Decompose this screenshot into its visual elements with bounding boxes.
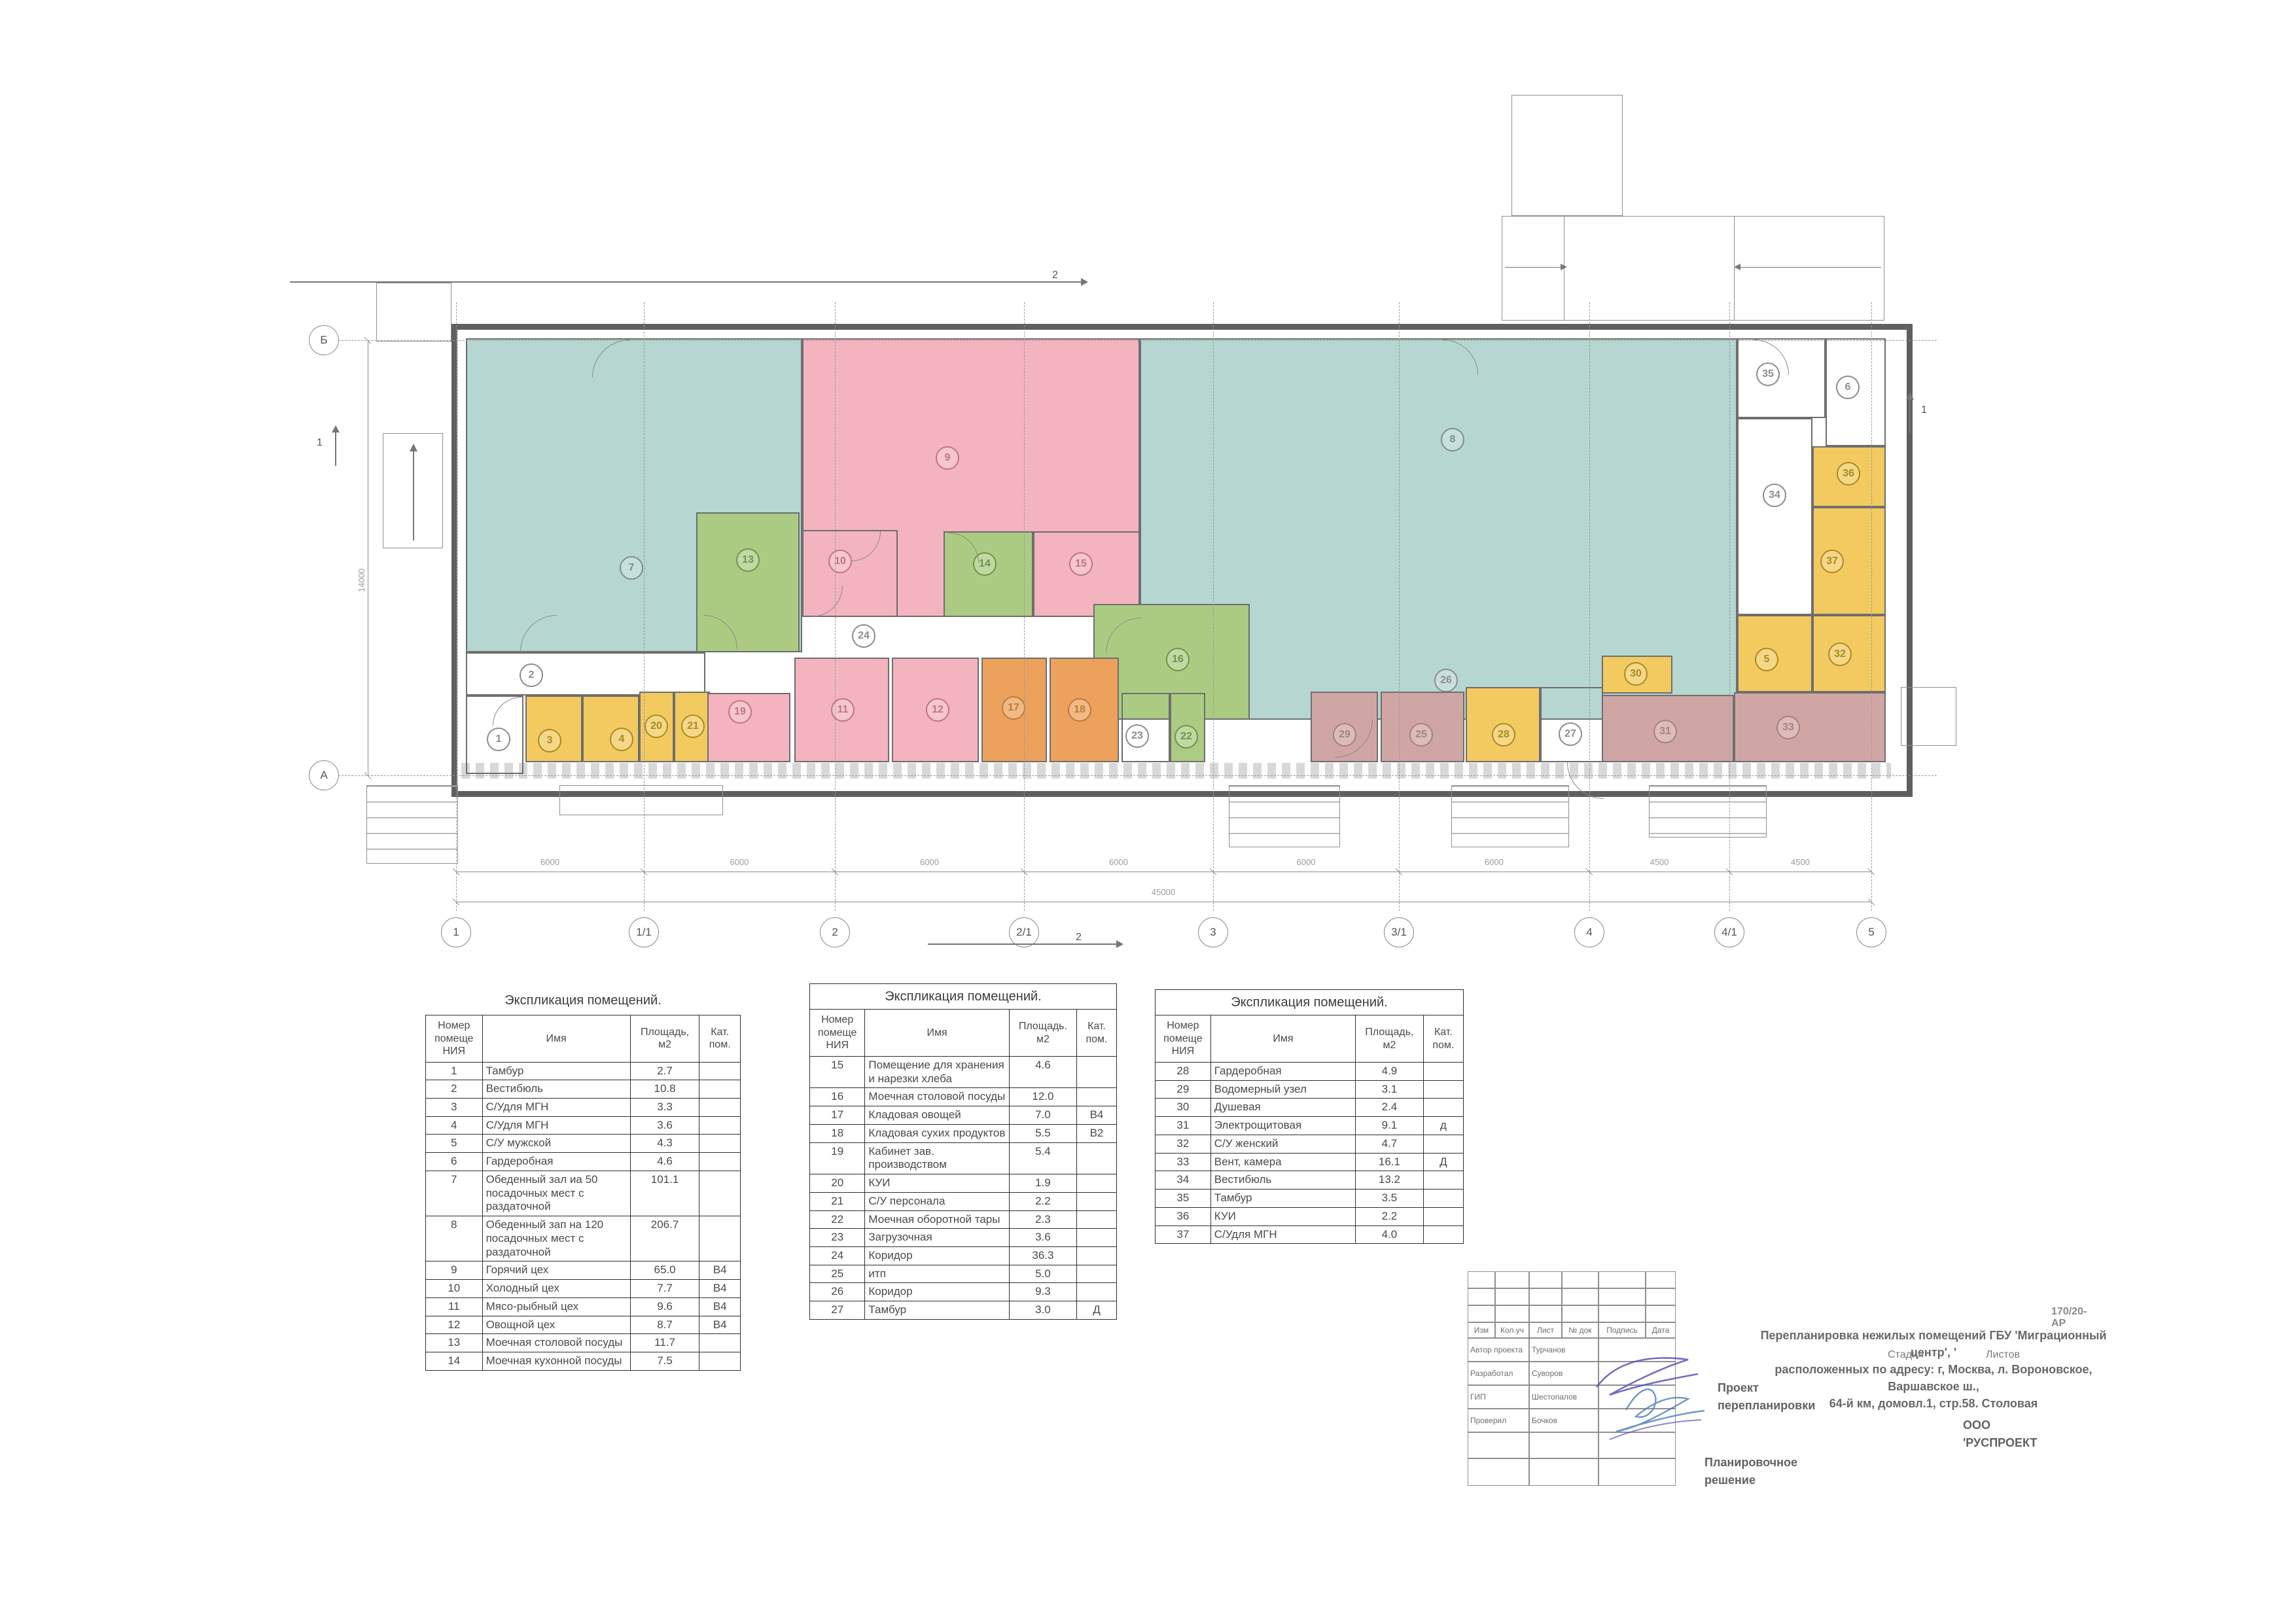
room-name-cell: Овощной цех [482, 1316, 630, 1334]
room-number-cell: 26 [810, 1283, 865, 1301]
room-area-cell: 5.0 [1009, 1265, 1076, 1283]
table-header-cell: Номер помеще НИЯ [810, 1010, 865, 1057]
room-number-cell: 34 [1156, 1171, 1211, 1190]
stamp-empty-cell [1598, 1288, 1646, 1305]
room-number-cell: 15 [810, 1056, 865, 1087]
section-marker-line [335, 432, 336, 466]
room-category-cell [699, 1334, 741, 1352]
room-name-cell: С/У мужской [482, 1135, 630, 1153]
room-name-cell: Тамбур [1210, 1190, 1355, 1208]
room-name-cell: С/У женский [1210, 1135, 1355, 1153]
stamp-empty-cell [1495, 1305, 1529, 1322]
room-circle-5: 5 [1755, 648, 1778, 671]
room-number-cell: 12 [426, 1316, 483, 1334]
stamp-cell: Подпись [1598, 1322, 1646, 1338]
room-circle-23: 23 [1125, 724, 1149, 748]
room-number-cell: 1 [426, 1062, 483, 1080]
room-area-cell: 3.0 [1009, 1301, 1076, 1320]
table-header-cell: Площадь, м2 [630, 1015, 699, 1063]
room-circle-19: 19 [728, 700, 752, 724]
room-area-cell: 65.0 [630, 1261, 699, 1280]
table-1-title: Экспликация помещений. [425, 993, 741, 1008]
room-number-cell: 16 [810, 1088, 865, 1106]
room-number-cell: 31 [1156, 1117, 1211, 1135]
axis-line-2 [835, 302, 836, 911]
room-category-cell [699, 1153, 741, 1171]
section-marker-line [928, 943, 1116, 945]
room-area-cell: 7.5 [630, 1352, 699, 1371]
room-category-cell [1423, 1207, 1463, 1225]
room-category-cell [699, 1062, 741, 1080]
table-header-cell: Имя [482, 1015, 630, 1063]
table-row: 24Коридор36.3 [810, 1247, 1117, 1265]
porch-dim-line [1505, 267, 1561, 268]
table-row: 12Овощной цех8.7В4 [426, 1316, 741, 1334]
room-category-cell [1077, 1192, 1117, 1210]
exterior-outline [1502, 216, 1884, 321]
room-circle-2: 2 [520, 663, 543, 687]
room-circle-36: 36 [1837, 462, 1860, 485]
room-34 [1737, 418, 1812, 615]
section-marker-1: 1 [1921, 404, 1927, 416]
room-category-cell [1423, 1190, 1463, 1208]
axis-circle-3/1: 3/1 [1384, 917, 1414, 947]
room-category-cell: В4 [699, 1316, 741, 1334]
stamp-cell: Изм [1468, 1322, 1495, 1338]
room-circle-33: 33 [1776, 716, 1800, 739]
table-row: 36КУИ2.2 [1156, 1207, 1464, 1225]
room-circle-10: 10 [828, 550, 852, 573]
room-number-cell: 28 [1156, 1062, 1211, 1080]
room-category-cell [699, 1135, 741, 1153]
table-header-cell: Кат. пом. [1423, 1015, 1463, 1063]
room-area-cell: 2.7 [630, 1062, 699, 1080]
room-circle-21: 21 [681, 714, 705, 738]
room-area-cell: 3.6 [630, 1116, 699, 1135]
stamp-cell: Разработал [1468, 1362, 1529, 1385]
room-circle-16: 16 [1166, 648, 1190, 671]
room-circle-25: 25 [1409, 723, 1433, 747]
room-circle-27: 27 [1559, 722, 1582, 746]
table-header-cell: Имя [1210, 1015, 1355, 1063]
room-name-cell: Вестибюль [1210, 1171, 1355, 1190]
dimension-line-left [368, 340, 368, 775]
room-number-cell: 37 [1156, 1225, 1211, 1244]
exterior-stairs [1649, 785, 1767, 837]
room-name-cell: Обеденный зал иа 50 посадочных мест с ра… [482, 1171, 630, 1216]
explication-table-3: Экспликация помещений.Номер помеще НИЯИм… [1155, 989, 1464, 1244]
table-header-cell: Имя [865, 1010, 1009, 1057]
stamp-empty-cell [1598, 1305, 1646, 1322]
table-header-cell: Площадь, м2 [1356, 1015, 1424, 1063]
dim-label: 6000 [1297, 857, 1316, 867]
table-row: 13Моечная столовой посуды11.7 [426, 1334, 741, 1352]
room-category-cell: В4 [699, 1297, 741, 1316]
dim-left-label: 14000 [357, 569, 366, 592]
room-area-cell: 2.3 [1009, 1210, 1076, 1229]
axis-line-3 [1213, 302, 1214, 911]
room-number-cell: 18 [810, 1124, 865, 1142]
room-category-cell [1423, 1099, 1463, 1117]
axis-circle-4/1: 4/1 [1714, 917, 1744, 947]
stamp-empty-cell [1468, 1432, 1529, 1458]
room-area-cell: 9.6 [630, 1297, 699, 1316]
room-number-cell: 6 [426, 1153, 483, 1171]
room-area-cell: 2.2 [1009, 1192, 1076, 1210]
room-area-cell: 7.0 [1009, 1106, 1076, 1125]
room-category-cell: д [1423, 1117, 1463, 1135]
drawing-name: Планировочное решение [1704, 1454, 1797, 1489]
axis-line-5 [1871, 302, 1872, 911]
axis-circle-4: 4 [1574, 917, 1604, 947]
room-category-cell [699, 1099, 741, 1117]
section-marker-line [1909, 399, 1911, 433]
stamp-empty-cell [1529, 1458, 1598, 1486]
room-area-cell: 13.2 [1356, 1171, 1424, 1190]
room-area-cell: 3.5 [1356, 1190, 1424, 1208]
room-name-cell: Вестибюль [482, 1080, 630, 1099]
stamp-empty-cell [1529, 1271, 1562, 1288]
room-number-cell: 32 [1156, 1135, 1211, 1153]
room-circle-28: 28 [1492, 723, 1515, 747]
dim-label: 6000 [540, 857, 559, 867]
room-33 [1734, 692, 1886, 762]
room-number-cell: 30 [1156, 1099, 1211, 1117]
room-number-cell: 21 [810, 1192, 865, 1210]
room-name-cell: С/Удля МГН [482, 1116, 630, 1135]
table-row: 30Душевая2.4 [1156, 1099, 1464, 1117]
stamp-cell: ГИП [1468, 1385, 1529, 1409]
room-number-cell: 7 [426, 1171, 483, 1216]
section-arrow-icon [1906, 393, 1914, 400]
room-area-cell: 8.7 [630, 1316, 699, 1334]
room-circle-13: 13 [736, 548, 760, 572]
room-category-cell [1077, 1210, 1117, 1229]
table-header-cell: Площадь. м2 [1009, 1010, 1076, 1057]
table-row: 26Коридор9.3 [810, 1283, 1117, 1301]
room-area-cell: 16.1 [1356, 1153, 1424, 1171]
room-circle-26: 26 [1434, 669, 1458, 692]
stamp-cell: Бочков [1529, 1409, 1598, 1432]
porch-dim-line [1740, 267, 1881, 268]
room-name-cell: Душевая [1210, 1099, 1355, 1117]
room-area-cell: 3.6 [1009, 1229, 1076, 1247]
room-circle-8: 8 [1441, 428, 1464, 451]
room-number-cell: 9 [426, 1261, 483, 1280]
room-category-cell [699, 1116, 741, 1135]
stamp-empty-cell [1646, 1288, 1676, 1305]
table-title: Экспликация помещений. [810, 984, 1117, 1010]
room-35 [1737, 338, 1826, 418]
room-category-cell [1077, 1229, 1117, 1247]
exterior-outline [1901, 687, 1956, 746]
room-circle-9: 9 [936, 446, 959, 470]
axis-circle-2: 2 [820, 917, 850, 947]
room-name-cell: Кабинет зав. производством [865, 1142, 1009, 1174]
stamp-empty-cell [1598, 1271, 1646, 1288]
room-name-cell: Обеденный зап на 120 посадочных мест с р… [482, 1216, 630, 1261]
stamp-cell: Шестопалов [1529, 1385, 1598, 1409]
room-circle-24: 24 [852, 624, 875, 648]
room-name-cell: Загрузочная [865, 1229, 1009, 1247]
stamp-empty-cell [1495, 1288, 1529, 1305]
exterior-outline [376, 283, 451, 342]
room-name-cell: Электрощитовая [1210, 1117, 1355, 1135]
table-row: 18Кладовая сухих продуктов5.5В2 [810, 1124, 1117, 1142]
room-number-cell: 19 [810, 1142, 865, 1174]
room-area-cell: 7.7 [630, 1280, 699, 1298]
room-number-cell: 13 [426, 1334, 483, 1352]
room-category-cell [1077, 1056, 1117, 1087]
stamp-empty-cell [1495, 1271, 1529, 1288]
table-header-cell: Кат. пом. [1077, 1010, 1117, 1057]
room-circle-15: 15 [1069, 552, 1093, 576]
room-category-cell [1423, 1080, 1463, 1099]
room-area-cell: 9.3 [1009, 1283, 1076, 1301]
room-name-cell: КУИ [1210, 1207, 1355, 1225]
doc-number: 170/20-АР [2051, 1306, 2087, 1330]
room-area-cell: 4.9 [1356, 1062, 1424, 1080]
table-row: 16Моечная столовой посуды12.0 [810, 1088, 1117, 1106]
room-name-cell: С/Удля МГН [1210, 1225, 1355, 1244]
stamp-cell: № док [1562, 1322, 1598, 1338]
room-area-cell: 5.4 [1009, 1142, 1076, 1174]
room-area-cell: 4.0 [1356, 1225, 1424, 1244]
room-name-cell: КУИ [865, 1174, 1009, 1193]
room-circle-31: 31 [1653, 720, 1677, 743]
room-area-cell: 3.3 [630, 1099, 699, 1117]
room-number-cell: 33 [1156, 1153, 1211, 1171]
room-name-cell: Горячий цех [482, 1261, 630, 1280]
room-category-cell [1077, 1174, 1117, 1193]
table-row: 32С/У женский4.7 [1156, 1135, 1464, 1153]
table-row: 23Загрузочная3.6 [810, 1229, 1117, 1247]
stamp-empty-cell [1468, 1305, 1495, 1322]
drawing-sheet: 7981310141516213420211911121718232224262… [0, 0, 2296, 1622]
table-row: 14Моечная кухонной посуды7.5 [426, 1352, 741, 1371]
room-category-cell [699, 1352, 741, 1371]
room-name-cell: Холодный цех [482, 1280, 630, 1298]
room-name-cell: Коридор [865, 1247, 1009, 1265]
stamp-cell: Автор проекта [1468, 1338, 1529, 1362]
room-circle-12: 12 [926, 698, 949, 722]
room-name-cell: Тамбур [482, 1062, 630, 1080]
room-name-cell: Мясо-рыбный цех [482, 1297, 630, 1316]
room-area-cell: 4.7 [1356, 1135, 1424, 1153]
explication-table-2: Экспликация помещений.Номер помеще НИЯИм… [809, 983, 1117, 1320]
room-area-cell: 4.6 [1009, 1056, 1076, 1087]
room-name-cell: Моечная оборотной тары [865, 1210, 1009, 1229]
section-marker-2: 2 [1076, 932, 1082, 943]
stamp-cell: Кол.уч [1495, 1322, 1529, 1338]
room-circle-37: 37 [1820, 550, 1844, 573]
room-name-cell: Водомерный узел [1210, 1080, 1355, 1099]
ramp-arrow-icon [410, 444, 417, 451]
table-row: 6Гардеробная4.6 [426, 1153, 741, 1171]
room-circle-7: 7 [620, 556, 643, 580]
axis-circle-Б: Б [309, 325, 339, 355]
exterior-outline [1511, 95, 1623, 216]
room-category-cell: Д [1423, 1153, 1463, 1171]
section-arrow-icon [1081, 278, 1088, 286]
dim-label: 6000 [1109, 857, 1128, 867]
explication-table: Экспликация помещений.Номер помеще НИЯИм… [1155, 989, 1464, 1244]
table-row: 10Холодный цех7.7В4 [426, 1280, 741, 1298]
room-area-cell: 10.8 [630, 1080, 699, 1099]
table-row: 19Кабинет зав. производством5.4 [810, 1142, 1117, 1174]
room-category-cell [1423, 1135, 1463, 1153]
room-circle-4: 4 [610, 728, 633, 751]
dim-label: 6000 [1485, 857, 1504, 867]
room-number-cell: 35 [1156, 1190, 1211, 1208]
room-number-cell: 4 [426, 1116, 483, 1135]
room-number-cell: 17 [810, 1106, 865, 1125]
room-area-cell: 101.1 [630, 1171, 699, 1216]
table-row: 17Кладовая овощей7.0В4 [810, 1106, 1117, 1125]
wall-hatch-bottom [461, 763, 1891, 779]
room-circle-32: 32 [1828, 643, 1852, 666]
room-3 [525, 696, 582, 762]
room-name-cell: Коридор [865, 1283, 1009, 1301]
room-category-cell: Д [1077, 1301, 1117, 1320]
stamp-empty-cell [1598, 1458, 1676, 1486]
room-circle-1: 1 [487, 728, 510, 751]
table-row: 8Обеденный зап на 120 посадочных мест с … [426, 1216, 741, 1261]
project-title-line: Перепланировка нежилых помещений ГБУ 'Ми… [1685, 1327, 2182, 1344]
axis-line-А [338, 775, 1937, 776]
exterior-stairs [366, 785, 458, 864]
table-row: 20КУИ1.9 [810, 1174, 1117, 1193]
table-row: 2Вестибюль10.8 [426, 1080, 741, 1099]
room-number-cell: 23 [810, 1229, 865, 1247]
axis-circle-5: 5 [1856, 917, 1886, 947]
explication-table: Номер помеще НИЯИмяПлощадь, м2Кат. пом.1… [425, 1015, 741, 1371]
room-category-cell [699, 1216, 741, 1261]
table-row: 37С/Удля МГН4.0 [1156, 1225, 1464, 1244]
room-category-cell: В4 [699, 1261, 741, 1280]
axis-circle-1: 1 [441, 917, 471, 947]
dim-total-label: 45000 [1152, 887, 1175, 897]
room-number-cell: 29 [1156, 1080, 1211, 1099]
table-row: 15Помещение для хранения и нарезки хлеба… [810, 1056, 1117, 1087]
room-category-cell [699, 1080, 741, 1099]
table-title: Экспликация помещений. [1156, 990, 1464, 1015]
table-row: 31Электрощитовая9.1д [1156, 1117, 1464, 1135]
table-row: 33Вент, камера16.1Д [1156, 1153, 1464, 1171]
table-row: 28Гардеробная4.9 [1156, 1062, 1464, 1080]
room-name-cell: Гардеробная [482, 1153, 630, 1171]
stamp-empty-cell [1529, 1288, 1562, 1305]
stamp-empty-cell [1562, 1288, 1598, 1305]
table-row: 11Мясо-рыбный цех9.6В4 [426, 1297, 741, 1316]
room-number-cell: 5 [426, 1135, 483, 1153]
stamp-empty-cell [1646, 1305, 1676, 1322]
room-category-cell [1423, 1225, 1463, 1244]
table-row: 3С/Удля МГН3.3 [426, 1099, 741, 1117]
stamp-empty-cell [1562, 1305, 1598, 1322]
room-category-cell [1423, 1171, 1463, 1190]
table-row: 29Водомерный узел3.1 [1156, 1080, 1464, 1099]
room-2 [466, 652, 705, 696]
stamp-cell: Лист [1529, 1322, 1562, 1338]
axis-circle-1/1: 1/1 [629, 917, 659, 947]
room-circle-30: 30 [1624, 662, 1648, 686]
room-number-cell: 36 [1156, 1207, 1211, 1225]
table-header-cell: Кат. пом. [699, 1015, 741, 1063]
project-title-line: центр', ' [1685, 1344, 2182, 1361]
table-row: 25итп5.0 [810, 1265, 1117, 1283]
room-area-cell: 5.5 [1009, 1124, 1076, 1142]
explication-table: Экспликация помещений.Номер помеще НИЯИм… [809, 983, 1117, 1320]
stamp-empty-cell [1646, 1271, 1676, 1288]
room-name-cell: Моечная столовой посуды [482, 1334, 630, 1352]
table-row: 22Моечная оборотной тары2.3 [810, 1210, 1117, 1229]
room-name-cell: Вент, камера [1210, 1153, 1355, 1171]
room-name-cell: Кладовая овощей [865, 1106, 1009, 1125]
dim-label: 4500 [1650, 857, 1669, 867]
dim-label: 6000 [920, 857, 939, 867]
room-number-cell: 25 [810, 1265, 865, 1283]
room-area-cell: 4.3 [630, 1135, 699, 1153]
stamp-cell: Дата [1646, 1322, 1676, 1338]
exterior-stairs [1451, 785, 1569, 847]
dimension-line-total [456, 902, 1871, 902]
table-row: 7Обеденный зал иа 50 посадочных мест с р… [426, 1171, 741, 1216]
stamp-empty-cell [1529, 1432, 1598, 1458]
room-number-cell: 2 [426, 1080, 483, 1099]
sheets-label: Листов [1986, 1349, 2020, 1361]
table-row: 4С/Удля МГН3.6 [426, 1116, 741, 1135]
room-name-cell: Тамбур [865, 1301, 1009, 1320]
ramp-arrow-line [413, 451, 414, 540]
room-name-cell: С/Удля МГН [482, 1099, 630, 1117]
table-row: 27Тамбур3.0Д [810, 1301, 1117, 1320]
room-circle-20: 20 [645, 714, 668, 738]
stamp-empty-cell [1468, 1458, 1529, 1486]
room-category-cell: В4 [699, 1280, 741, 1298]
room-number-cell: 11 [426, 1297, 483, 1316]
room-circle-22: 22 [1174, 725, 1198, 749]
room-circle-17: 17 [1002, 696, 1025, 720]
room-category-cell: В2 [1077, 1124, 1117, 1142]
room-category-cell [1077, 1088, 1117, 1106]
room-circle-18: 18 [1068, 698, 1091, 722]
explication-table-1: Экспликация помещений. Номер помеще НИЯИ… [425, 993, 741, 1371]
table-header-cell: Номер помеще НИЯ [426, 1015, 483, 1063]
stamp-empty-cell [1562, 1271, 1598, 1288]
table-row: 5С/У мужской4.3 [426, 1135, 741, 1153]
room-area-cell: 2.4 [1356, 1099, 1424, 1117]
section-marker-2: 2 [1052, 270, 1058, 281]
room-name-cell: С/У персонала [865, 1192, 1009, 1210]
room-category-cell [1423, 1062, 1463, 1080]
room-number-cell: 14 [426, 1352, 483, 1371]
room-area-cell: 9.1 [1356, 1117, 1424, 1135]
table-header-cell: Номер помеще НИЯ [1156, 1015, 1211, 1063]
room-category-cell: В4 [1077, 1106, 1117, 1125]
room-number-cell: 27 [810, 1301, 865, 1320]
stamp-empty-cell [1529, 1305, 1562, 1322]
section-arrow-icon [332, 425, 340, 432]
room-area-cell: 4.6 [630, 1153, 699, 1171]
room-name-cell: Моечная кухонной посуды [482, 1352, 630, 1371]
dim-label: 6000 [730, 857, 749, 867]
room-category-cell [1077, 1283, 1117, 1301]
dim-label: 4500 [1791, 857, 1810, 867]
axis-line-3/1 [1399, 302, 1400, 911]
room-area-cell: 36.3 [1009, 1247, 1076, 1265]
room-circle-6: 6 [1836, 376, 1860, 399]
